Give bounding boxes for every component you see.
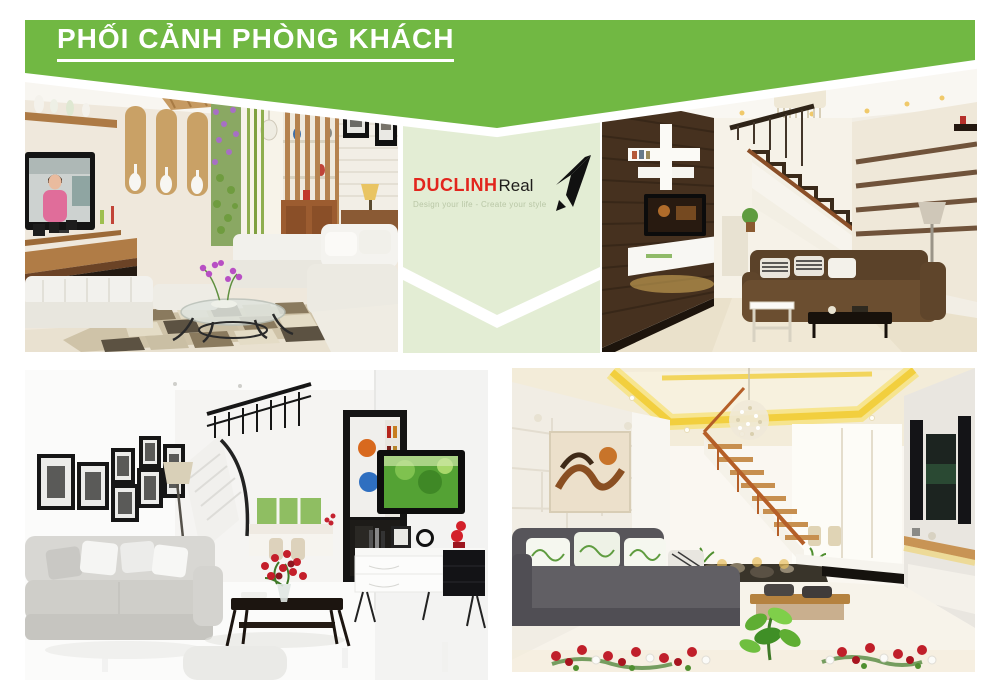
living-room-illustration-4 (512, 368, 975, 672)
brand-panel: DUCLINHReal Design your life - Create yo… (403, 115, 600, 353)
tv (377, 450, 465, 514)
brand-suffix: Real (499, 176, 534, 196)
photo-living-room-top-right (602, 66, 977, 352)
chevron-stripe (403, 115, 600, 353)
vertical-garden (211, 96, 264, 252)
grey-sofa (25, 536, 223, 640)
flyer-page: DUCLINHReal Design your life - Create yo… (0, 0, 1000, 697)
abstract-painting (550, 432, 630, 512)
tv-wall (904, 368, 975, 628)
photo-living-room-bottom-left (25, 370, 488, 680)
tv (644, 194, 706, 236)
brand-logo: DUCLINHReal Design your life - Create yo… (413, 175, 595, 209)
pouf (183, 646, 287, 680)
living-room-illustration-2 (602, 66, 977, 352)
photo-living-room-top-left (25, 78, 398, 352)
slat-partition (281, 86, 340, 244)
brand-name: DUCLINH (413, 175, 498, 196)
living-room-illustration-3 (25, 370, 488, 680)
bright-background (792, 424, 902, 572)
photo-living-room-bottom-right (512, 368, 975, 672)
brown-sofa (742, 250, 946, 322)
page-title: PHỐI CẢNH PHÒNG KHÁCH (57, 24, 454, 62)
living-room-illustration-1 (25, 78, 398, 352)
logo-arrow-icon (551, 155, 591, 211)
wall-niches (125, 106, 208, 196)
tv (25, 152, 95, 233)
